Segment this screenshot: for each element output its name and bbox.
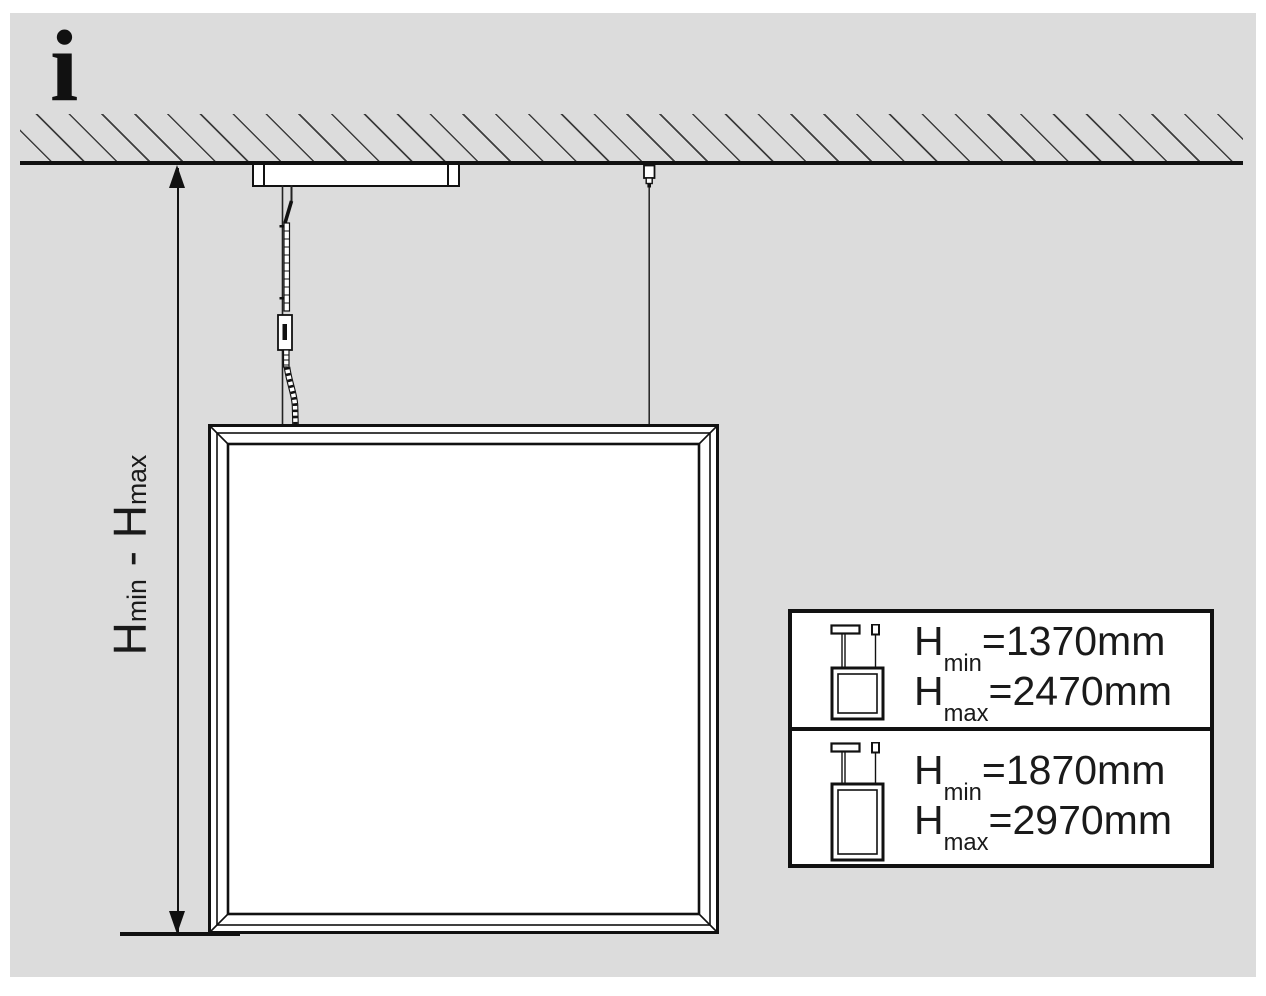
wire-clamp-tick-1 — [280, 225, 285, 228]
h-symbol: H — [914, 618, 944, 664]
h-min-line: Hmin=1870mm — [914, 745, 1172, 795]
dimension-arrow-down — [169, 911, 185, 934]
cable-tail — [287, 367, 296, 425]
info-icon: i — [50, 16, 78, 118]
tall-panel-heights: Hmin=1870mm Hmax=2970mm — [914, 745, 1172, 845]
square-panel-heights: Hmin=1370mm Hmax=2470mm — [914, 616, 1172, 716]
installation-diagram: i — [0, 0, 1266, 996]
table-row-divider — [792, 727, 1210, 731]
cable-sleeve-lower — [284, 350, 290, 367]
h-min-value: =1370mm — [982, 618, 1165, 664]
h-symbol: H — [914, 797, 944, 843]
h-symbol: H — [103, 505, 157, 538]
wire-clamp-tick-2 — [280, 297, 285, 300]
square-panel-icon — [830, 624, 892, 721]
fitting-collar — [646, 178, 652, 184]
min-subscript: min — [944, 779, 982, 806]
h-symbol: H — [914, 668, 944, 714]
cable-sleeve-upper — [284, 223, 290, 311]
min-subscript: min — [944, 650, 982, 677]
ceiling-line — [20, 161, 1243, 165]
canopy-right-cap — [447, 165, 449, 185]
ceiling-fitting — [644, 166, 655, 179]
height-table: Hmin=1370mm Hmax=2470mm Hmin=1870mm Hmax… — [788, 609, 1214, 868]
right-suspension — [642, 164, 658, 426]
h-min-value: =1870mm — [982, 747, 1165, 793]
height-range-label: Hmin - Hmax — [90, 395, 170, 715]
dimension-baseline — [120, 932, 240, 936]
panel-outer-frame — [210, 426, 718, 933]
range-separator: - — [103, 538, 157, 579]
h-symbol: H — [103, 622, 157, 655]
led-panel — [208, 424, 719, 934]
ceiling-hatch — [20, 114, 1243, 162]
cord-bend — [285, 201, 292, 223]
canopy-left-cap — [263, 165, 265, 185]
max-subscript: max — [944, 829, 989, 856]
dimension-arrow-up — [169, 165, 185, 188]
h-symbol: H — [914, 747, 944, 793]
tall-panel-icon — [830, 742, 892, 862]
connector-slot — [283, 324, 288, 340]
h-max-value: =2970mm — [989, 797, 1172, 843]
h-max-value: =2470mm — [989, 668, 1172, 714]
dimension-line — [177, 168, 180, 934]
h-min-line: Hmin=1370mm — [914, 616, 1172, 666]
power-cable-assembly — [270, 185, 310, 427]
fitting-nub — [647, 184, 651, 188]
max-subscript: max — [944, 700, 989, 727]
canopy-box — [252, 163, 460, 187]
